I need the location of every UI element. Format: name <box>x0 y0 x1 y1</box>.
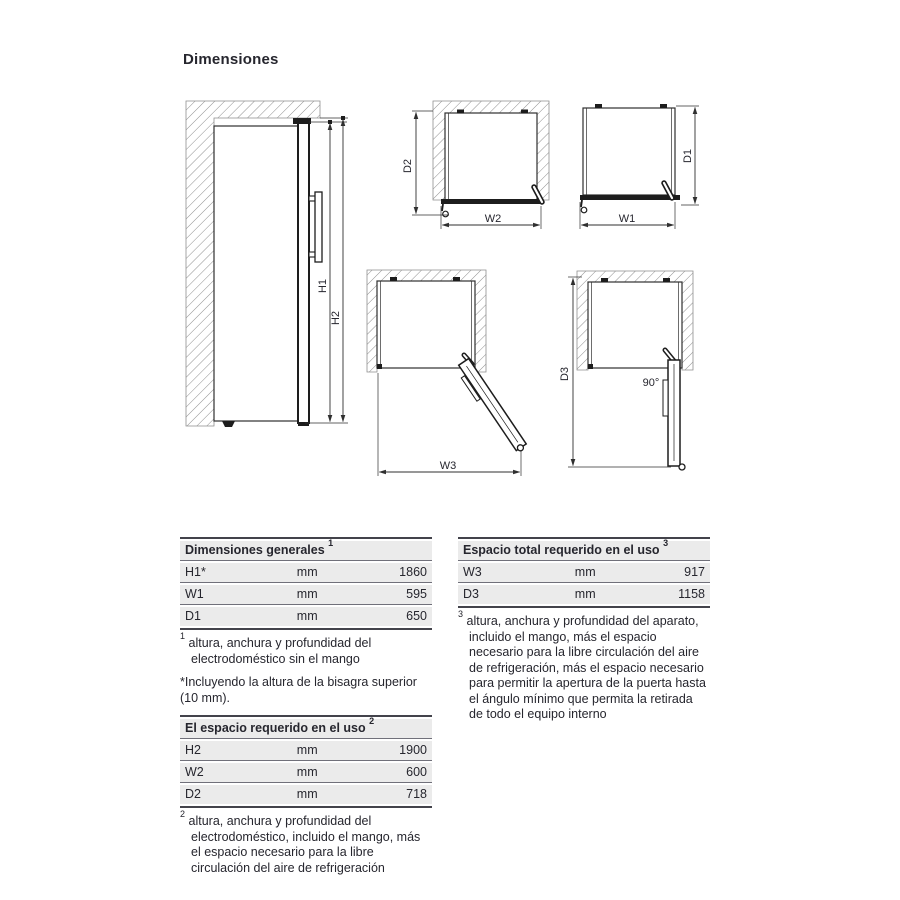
row-label: H2 <box>185 743 267 757</box>
table-title: Dimensiones generales <box>185 543 325 557</box>
door-hinge <box>581 200 587 213</box>
row-unit: mm <box>267 743 347 757</box>
row-value: 1860 <box>347 565 427 579</box>
top-view-door-open-diagram: W3 <box>360 262 538 484</box>
door-handle <box>309 192 322 262</box>
row-value: 917 <box>625 565 705 579</box>
footnote-marker: 2 <box>180 809 185 819</box>
door-end-cap <box>679 464 685 470</box>
side-view-diagram: H1 H2 <box>180 96 352 448</box>
front-foot <box>222 421 235 427</box>
table-title: Espacio total requerido en el uso <box>463 543 660 557</box>
table-row: H1* mm 1860 <box>180 563 432 583</box>
right-table-column: Espacio total requerido en el uso 3 W3 m… <box>458 537 710 723</box>
fridge-door <box>298 122 309 423</box>
corner-mark <box>377 364 382 369</box>
row-unit: mm <box>545 565 625 579</box>
dimension-label-w3: W3 <box>440 460 457 472</box>
row-label: W1 <box>185 587 267 601</box>
hinge-mark-right <box>663 278 670 282</box>
row-unit: mm <box>267 787 347 801</box>
footnote-star: *Incluyendo la altura de la bisagra supe… <box>180 675 432 706</box>
corner-mark <box>588 364 593 369</box>
dimension-label-w1: W1 <box>619 213 636 225</box>
row-unit: mm <box>545 587 625 601</box>
fridge-door-open <box>455 359 528 456</box>
row-value: 1900 <box>347 743 427 757</box>
dimension-label-h2: H2 <box>330 311 342 325</box>
table-row: H2 mm 1900 <box>180 741 432 761</box>
hinge-mark-left <box>601 278 608 282</box>
table-header: Dimensiones generales 1 <box>180 541 432 561</box>
table-row: W2 mm 600 <box>180 763 432 783</box>
dimension-label-w2: W2 <box>485 213 502 225</box>
footnote-text: Incluyendo la altura de la bisagra super… <box>180 675 417 705</box>
row-value: 1158 <box>625 587 705 601</box>
table-row: W3 mm 917 <box>458 563 710 583</box>
footnote-ref: 2 <box>369 716 374 726</box>
row-unit: mm <box>267 587 347 601</box>
table-row: D2 mm 718 <box>180 785 432 804</box>
fridge-body <box>445 113 537 200</box>
left-table-column: Dimensiones generales 1 H1* mm 1860 W1 m… <box>180 537 432 876</box>
top-view-niche-diagram: D2 W2 <box>405 98 565 232</box>
row-value: 650 <box>347 609 427 623</box>
manual-page: Dimensiones H <box>0 0 900 900</box>
total-space-table: Espacio total requerido en el uso 3 W3 m… <box>458 537 710 608</box>
top-hinge <box>293 118 311 124</box>
dimension-label-d2: D2 <box>402 159 414 173</box>
table-header: El espacio requerido en el uso 2 <box>180 719 432 739</box>
row-value: 600 <box>347 765 427 779</box>
row-label: W3 <box>463 565 545 579</box>
row-unit: mm <box>267 765 347 779</box>
hinge-mark-right <box>453 277 460 281</box>
hinge-mark-left <box>595 104 602 108</box>
table-row: D1 mm 650 <box>180 607 432 626</box>
row-unit: mm <box>267 565 347 579</box>
space-required-table: El espacio requerido en el uso 2 H2 mm 1… <box>180 715 432 808</box>
hinge-mark-left <box>457 110 464 114</box>
general-dimensions-table: Dimensiones generales 1 H1* mm 1860 W1 m… <box>180 537 432 630</box>
footnote-ref: 3 <box>663 538 668 548</box>
top-view-free-diagram: D1 W1 <box>565 98 710 232</box>
footnote-text: altura, anchura y profundidad del aparat… <box>467 614 706 721</box>
row-value: 718 <box>347 787 427 801</box>
table-header: Espacio total requerido en el uso 3 <box>458 541 710 561</box>
fridge-body <box>377 281 475 368</box>
row-unit: mm <box>267 609 347 623</box>
footnote-marker: 3 <box>458 609 463 619</box>
row-label: H1* <box>185 565 267 579</box>
fridge-body <box>583 108 675 195</box>
footnote-marker: 1 <box>180 631 185 641</box>
door-bottom-mark <box>298 423 309 426</box>
dimension-label-d3: D3 <box>559 367 571 381</box>
dimension-label-d1: D1 <box>682 149 694 163</box>
door-angle-label: 90° <box>643 377 660 389</box>
row-value: 595 <box>347 587 427 601</box>
row-label: W2 <box>185 765 267 779</box>
fridge-door-open-90 <box>663 360 685 470</box>
footnote-2: 2 altura, anchura y profundidad del elec… <box>180 814 432 876</box>
hinge-mark-right <box>660 104 667 108</box>
table-row: W1 mm 595 <box>180 585 432 605</box>
table-row: D3 mm 1158 <box>458 585 710 604</box>
footnote-1: 1 altura, anchura y profundidad del elec… <box>180 636 432 667</box>
footnote-ref: 1 <box>328 538 333 548</box>
footnote-text: altura, anchura y profundidad del electr… <box>189 814 421 875</box>
footnote-3: 3 altura, anchura y profundidad del apar… <box>458 614 710 723</box>
row-label: D1 <box>185 609 267 623</box>
dimension-label-h1: H1 <box>317 279 329 293</box>
footnote-text: altura, anchura y profundidad del electr… <box>189 636 372 666</box>
fridge-body <box>214 126 298 421</box>
dimension-h1 <box>305 116 348 423</box>
hinge-mark-left <box>390 277 397 281</box>
fridge-door <box>441 199 541 204</box>
table-title: El espacio requerido en el uso <box>185 721 366 735</box>
hinge-mark-right <box>521 110 528 114</box>
top-view-door-90-diagram: 90° D3 <box>555 262 705 484</box>
page-title: Dimensiones <box>183 51 279 68</box>
row-label: D3 <box>463 587 545 601</box>
row-label: D2 <box>185 787 267 801</box>
fridge-door <box>580 195 680 200</box>
door-handle <box>663 380 668 416</box>
